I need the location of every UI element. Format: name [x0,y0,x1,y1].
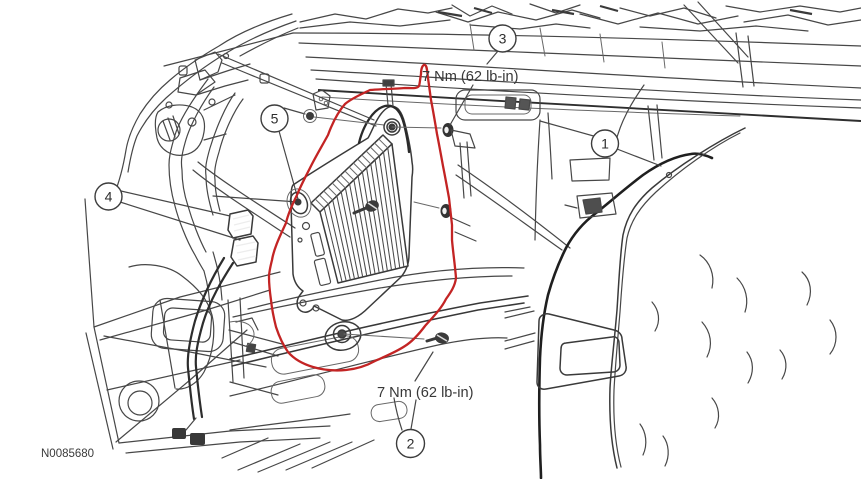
svg-text:N0085680: N0085680 [41,448,94,460]
svg-text:1: 1 [601,136,609,152]
svg-text:2: 2 [407,436,415,452]
svg-text:7 Nm (62 lb-in): 7 Nm (62 lb-in) [377,385,474,401]
svg-text:7 Nm (62 lb-in): 7 Nm (62 lb-in) [422,69,519,85]
svg-text:3: 3 [499,31,507,47]
svg-text:5: 5 [271,111,279,127]
svg-text:4: 4 [105,189,113,205]
